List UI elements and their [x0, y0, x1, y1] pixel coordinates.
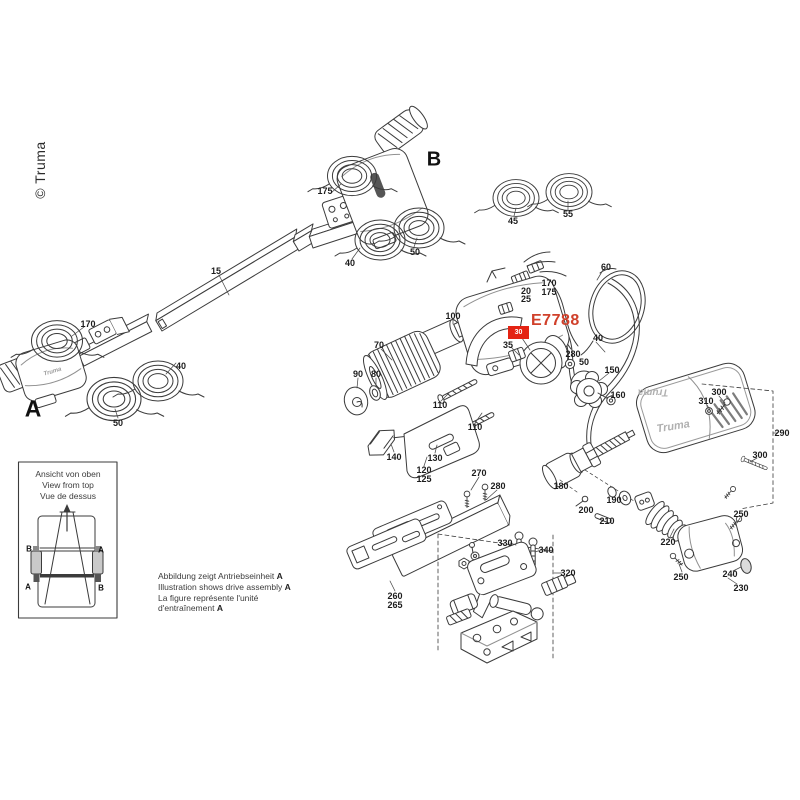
screw-270 — [464, 491, 470, 507]
inset-title-line: Vue de dessus — [19, 491, 117, 502]
caption-line: d'entraînement A — [158, 603, 291, 614]
copyright-notice: © Truma — [32, 141, 48, 198]
coupler-block — [634, 491, 655, 511]
highlighted-part-code: E7788 — [531, 312, 580, 330]
cable-coil-40 — [113, 361, 204, 401]
button-240 — [739, 557, 753, 574]
screw-300b — [740, 456, 768, 472]
inset-title-block: Ansicht von obenView from topVue de dess… — [19, 469, 117, 502]
bracket-assembly-320 — [438, 532, 576, 663]
exploded-parts-diagram-page: Truma — [0, 0, 800, 800]
caption-line: La figure représente l'unité — [158, 593, 291, 604]
square-tube-15 — [153, 229, 306, 331]
assembly-a-rail — [70, 302, 156, 366]
screw-280 — [482, 484, 488, 500]
guard-plate-130 — [404, 406, 479, 478]
end-cap-90 — [341, 385, 370, 418]
washer-190 — [606, 486, 632, 507]
caption-line: Abbildung zeigt Antriebseinheit A — [158, 571, 291, 582]
inset-title-line: View from top — [19, 480, 117, 491]
assembly-b-roller — [372, 104, 431, 157]
exploded-diagram-drawing: Truma — [0, 0, 800, 800]
top-cover-290: Truma Truma — [631, 356, 759, 457]
cable-coil-55 — [528, 174, 612, 211]
end-cap-housing-230 — [675, 513, 745, 574]
screw-300c — [723, 485, 737, 499]
spindle-180 — [540, 421, 640, 491]
cable-coil-45 — [475, 180, 559, 217]
cover-logo-top: Truma — [638, 387, 669, 398]
washer-280 — [565, 359, 574, 368]
caption-line: Illustration shows drive assembly A — [158, 582, 291, 593]
bolt-110a — [437, 377, 479, 405]
highlighted-part-marker: 30 — [508, 326, 529, 339]
caption-text-block: Abbildung zeigt Antriebseinheit AIllustr… — [158, 571, 291, 614]
inset-title-line: Ansicht von oben — [19, 469, 117, 480]
part-label-30-highlighted: 30 — [515, 329, 523, 336]
pin-210 — [594, 513, 611, 524]
screw-200 — [576, 496, 588, 506]
